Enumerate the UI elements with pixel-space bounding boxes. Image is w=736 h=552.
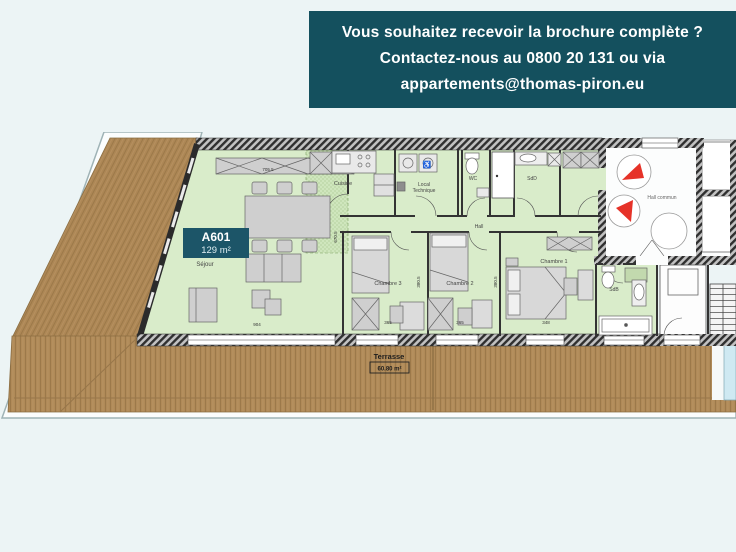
room-label-cuisine: Cuisine xyxy=(334,181,352,187)
dim-left-height: 670.5 xyxy=(333,231,338,243)
wall xyxy=(678,138,704,148)
dim-chambre1-width: 348 xyxy=(542,320,550,325)
neighbour-room-2 xyxy=(702,196,732,252)
door-panel xyxy=(492,152,514,198)
brochure-banner: Vous souhaitez recevoir la brochure comp… xyxy=(309,11,736,108)
room-label-local-2: Technique xyxy=(413,188,436,194)
dim-chambre3-height: 380.5 xyxy=(416,276,421,288)
hall-door-gap xyxy=(636,256,668,265)
deck-gap xyxy=(712,342,724,400)
floor-plan-drawing: A601 129 m² Séjour Cuisine Local Techniq… xyxy=(0,132,736,432)
unit-area: 129 m² xyxy=(201,245,231,256)
dim-chambre2-width: 365 xyxy=(456,320,464,325)
dim-sejour-width: 904 xyxy=(253,322,261,327)
wall xyxy=(730,140,736,258)
lift-room xyxy=(660,265,706,336)
entry-door-gap xyxy=(598,168,606,190)
floor-plan: A601 129 m² Séjour Cuisine Local Techniq… xyxy=(0,132,736,432)
terrace-deck-bottom xyxy=(8,336,736,412)
room-label-chambre2: Chambre 2 xyxy=(446,281,473,287)
room-label-sejour: Séjour xyxy=(196,262,213,268)
room-label-hall: Hall xyxy=(475,224,484,230)
room-label-sdd: SdD xyxy=(527,176,537,182)
banner-line-1: Vous souhaitez recevoir la brochure comp… xyxy=(342,23,703,44)
banner-line-3: appartements@thomas-piron.eu xyxy=(401,75,645,96)
dim-chambre3-width: 365 xyxy=(384,320,392,325)
unit-number: A601 xyxy=(202,230,231,244)
terrace-label: Terrasse xyxy=(374,352,405,361)
room-label-chambre3: Chambre 3 xyxy=(374,281,401,287)
room-label-chambre1: Chambre 1 xyxy=(540,259,567,265)
wall xyxy=(696,140,702,260)
windows xyxy=(188,335,700,345)
water-strip xyxy=(724,342,736,400)
neighbour-room-1 xyxy=(702,142,732,190)
room-label-wc: WC xyxy=(469,176,478,182)
room-label-sdb: SdB xyxy=(609,287,619,293)
door-knob xyxy=(496,175,498,177)
terrace-area: 60.80 m² xyxy=(377,366,401,373)
dim-chambre1-height: 380.5 xyxy=(493,276,498,288)
top-wall xyxy=(196,138,602,150)
wall xyxy=(602,138,642,148)
dim-top-width: 705.5 xyxy=(262,167,274,172)
room-label-hall-commun: Hall commun xyxy=(647,195,676,201)
banner-line-2: Contactez-nous au 0800 20 131 ou via xyxy=(380,49,665,70)
accessible-icon: ♿ xyxy=(423,160,432,169)
